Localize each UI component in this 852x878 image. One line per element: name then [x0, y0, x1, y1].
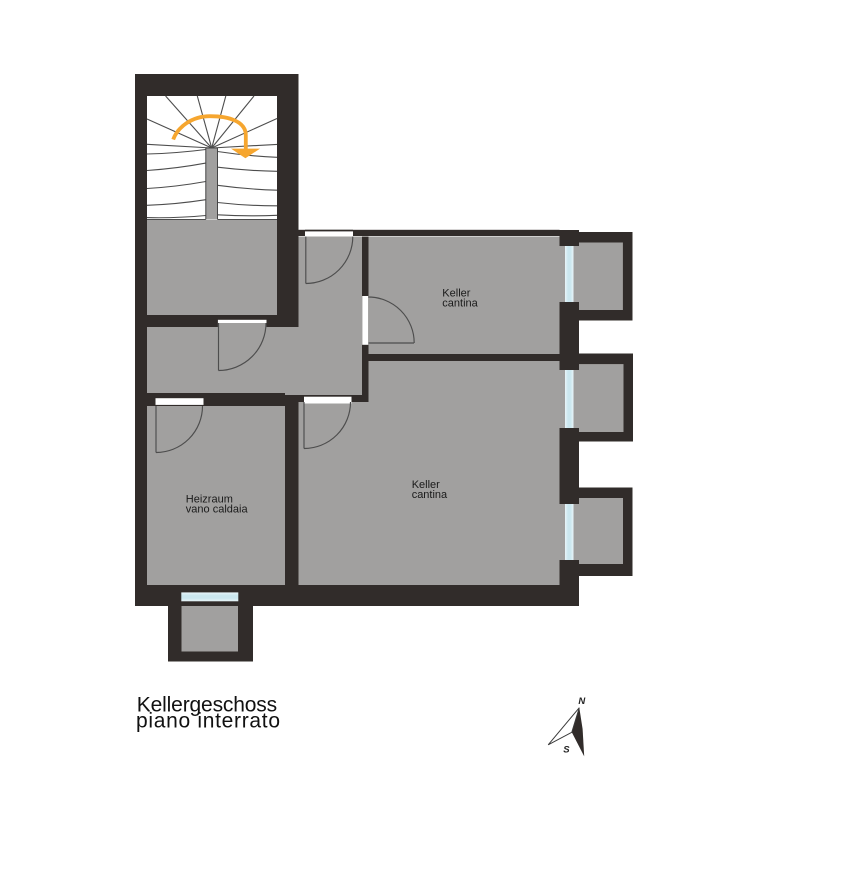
- svg-text:vano caldaia: vano caldaia: [186, 504, 249, 516]
- svg-text:cantina: cantina: [412, 489, 448, 501]
- svg-text:N: N: [578, 696, 586, 707]
- svg-text:S: S: [563, 744, 570, 755]
- svg-text:piano interrato: piano interrato: [136, 710, 280, 733]
- svg-text:cantina: cantina: [442, 298, 478, 310]
